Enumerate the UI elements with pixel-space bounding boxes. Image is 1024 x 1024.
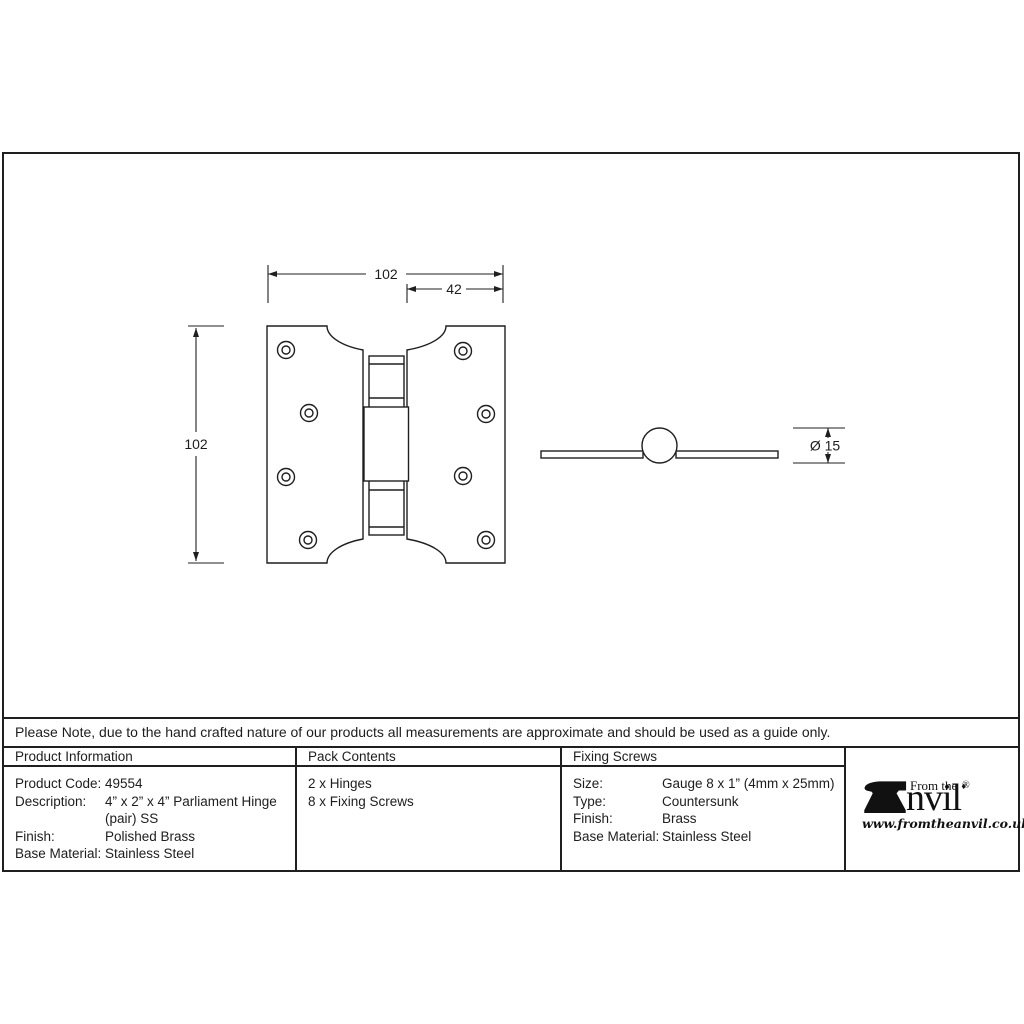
spec-label: Product Code: [15, 775, 105, 793]
product-information-body: Product Code: 49554 Description: 4” x 2”… [4, 767, 295, 870]
spec-value: Countersunk [662, 793, 844, 811]
logo-website: www.fromtheanvil.co.uk [862, 816, 1002, 831]
pack-contents-header: Pack Contents [297, 748, 560, 767]
dim-label-width: 102 [374, 266, 398, 282]
spec-label: Size: [573, 775, 662, 793]
screw-hole [455, 468, 472, 485]
spec-value: Stainless Steel [105, 845, 289, 863]
column-fixing-screws: Fixing Screws Size: Gauge 8 x 1” (4mm x … [562, 748, 846, 870]
diamond-icon: ♦ [961, 781, 966, 791]
anvil-icon [862, 779, 908, 813]
spec-row: Size: Gauge 8 x 1” (4mm x 25mm) [573, 775, 844, 793]
screw-hole [301, 405, 318, 422]
side-view-knuckle-pin [642, 428, 677, 463]
drawing-area: 102 42 102 Ø 15 [4, 154, 1018, 717]
screw-hole [478, 406, 495, 423]
dim-label-offset: 42 [446, 281, 462, 297]
side-view-left-leaf [541, 451, 643, 458]
screw-hole [278, 469, 295, 486]
spec-row: Type: Countersunk [573, 793, 844, 811]
spec-label: Finish: [15, 828, 105, 846]
spec-row: Finish: Polished Brass [15, 828, 295, 846]
logo-prefix-text: From the [910, 778, 957, 793]
spec-row: Finish: Brass [573, 810, 844, 828]
screw-hole [278, 342, 295, 359]
spec-value: 49554 [105, 775, 289, 793]
column-brand-logo: nvil® From the♦ www.fromtheanvil.co.uk [846, 748, 1018, 870]
note-bar: Please Note, due to the hand crafted nat… [4, 717, 1018, 748]
dim-label-height: 102 [184, 436, 208, 452]
spec-value: Gauge 8 x 1” (4mm x 25mm) [662, 775, 844, 793]
hinge-knuckle-column [364, 356, 409, 535]
hinge-middle-knuckle [364, 407, 409, 481]
screw-hole [478, 532, 495, 549]
spec-value: Brass [662, 810, 844, 828]
spec-row: Product Code: 49554 [15, 775, 295, 793]
pack-contents-item: 2 x Hinges [308, 775, 560, 793]
product-information-header: Product Information [4, 748, 295, 767]
dim-label-diameter: Ø 15 [810, 438, 841, 454]
spec-table: Product Information Product Code: 49554 … [4, 748, 1018, 870]
screw-hole [455, 343, 472, 360]
spec-row: Base Material: Stainless Steel [15, 845, 295, 863]
spec-value: Polished Brass [105, 828, 289, 846]
spec-label: Base Material: [573, 828, 662, 846]
spec-label: Description: [15, 793, 105, 828]
hinge-left-leaf [267, 326, 363, 563]
hinge-technical-drawing: 102 42 102 Ø 15 [4, 154, 1016, 717]
spec-row: Base Material: Stainless Steel [573, 828, 844, 846]
fixing-screws-header: Fixing Screws [562, 748, 844, 767]
spec-row: Description: 4” x 2” x 4” Parliament Hin… [15, 793, 295, 828]
front-view [267, 326, 505, 563]
pack-contents-body: 2 x Hinges 8 x Fixing Screws [297, 767, 560, 870]
spec-label: Type: [573, 793, 662, 811]
spec-value: Stainless Steel [662, 828, 844, 846]
from-the-anvil-logo: nvil® From the♦ www.fromtheanvil.co.uk [862, 779, 1002, 831]
side-view [541, 428, 845, 463]
spec-label: Finish: [573, 810, 662, 828]
spec-value: 4” x 2” x 4” Parliament Hinge (pair) SS [105, 793, 289, 828]
screw-hole [300, 532, 317, 549]
spec-label: Base Material: [15, 845, 105, 863]
sheet-frame: 102 42 102 Ø 15 Please Note, due to the … [2, 152, 1020, 872]
spec-sheet-page: { "note": "Please Note, due to the hand … [0, 0, 1024, 1024]
column-product-information: Product Information Product Code: 49554 … [4, 748, 297, 870]
fixing-screws-body: Size: Gauge 8 x 1” (4mm x 25mm) Type: Co… [562, 767, 844, 870]
logo-prefix: From the♦ [910, 778, 966, 794]
hinge-right-leaf [407, 326, 505, 563]
side-view-right-leaf [676, 451, 778, 458]
pack-contents-item: 8 x Fixing Screws [308, 793, 560, 811]
column-pack-contents: Pack Contents 2 x Hinges 8 x Fixing Scre… [297, 748, 562, 870]
